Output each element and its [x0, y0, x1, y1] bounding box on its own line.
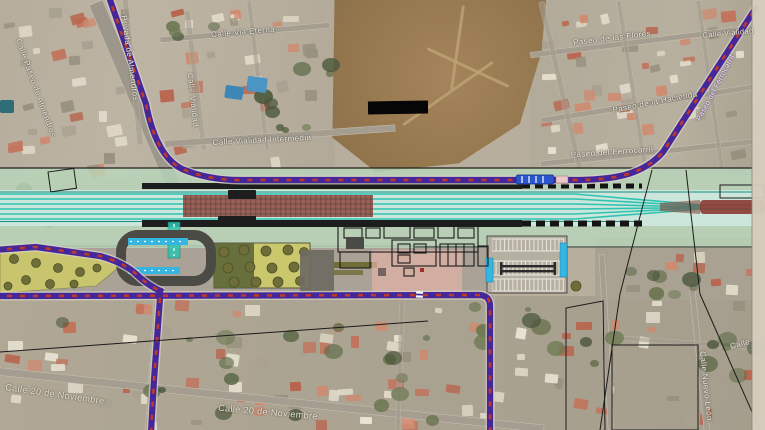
parking-lot — [486, 236, 567, 293]
accessible-strip — [486, 258, 493, 282]
plan-sheet-margin — [752, 0, 765, 430]
bus-vehicle — [516, 175, 568, 184]
planter-strip — [333, 270, 363, 275]
station-plan-overlay — [0, 0, 765, 430]
plaza-kiosk — [420, 268, 424, 272]
service-building — [346, 237, 364, 249]
accessible-strip — [560, 243, 567, 277]
map-canvas: Calle Paseo de AlmendrosPrivada de Almen… — [0, 0, 765, 430]
paved-forecourt — [300, 250, 334, 292]
